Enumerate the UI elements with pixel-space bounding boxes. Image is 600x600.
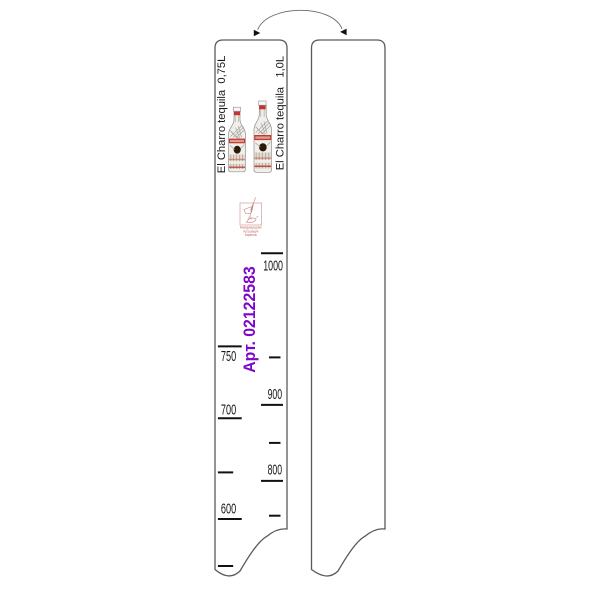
- svg-text:Барменов: Барменов: [245, 233, 257, 237]
- svg-text:700: 700: [221, 401, 236, 418]
- svg-text:900: 900: [268, 386, 283, 403]
- svg-text:1000: 1000: [263, 257, 283, 274]
- svg-text:El Charro tequila 1,0L: El Charro tequila 1,0L: [274, 56, 286, 170]
- svg-text:Арт. 02122583: Арт. 02122583: [241, 266, 259, 373]
- svg-text:750: 750: [221, 348, 236, 365]
- svg-text:800: 800: [268, 462, 283, 479]
- svg-text:El Charro tequila 0,75L: El Charro tequila 0,75L: [216, 56, 228, 174]
- svg-text:600: 600: [221, 500, 236, 517]
